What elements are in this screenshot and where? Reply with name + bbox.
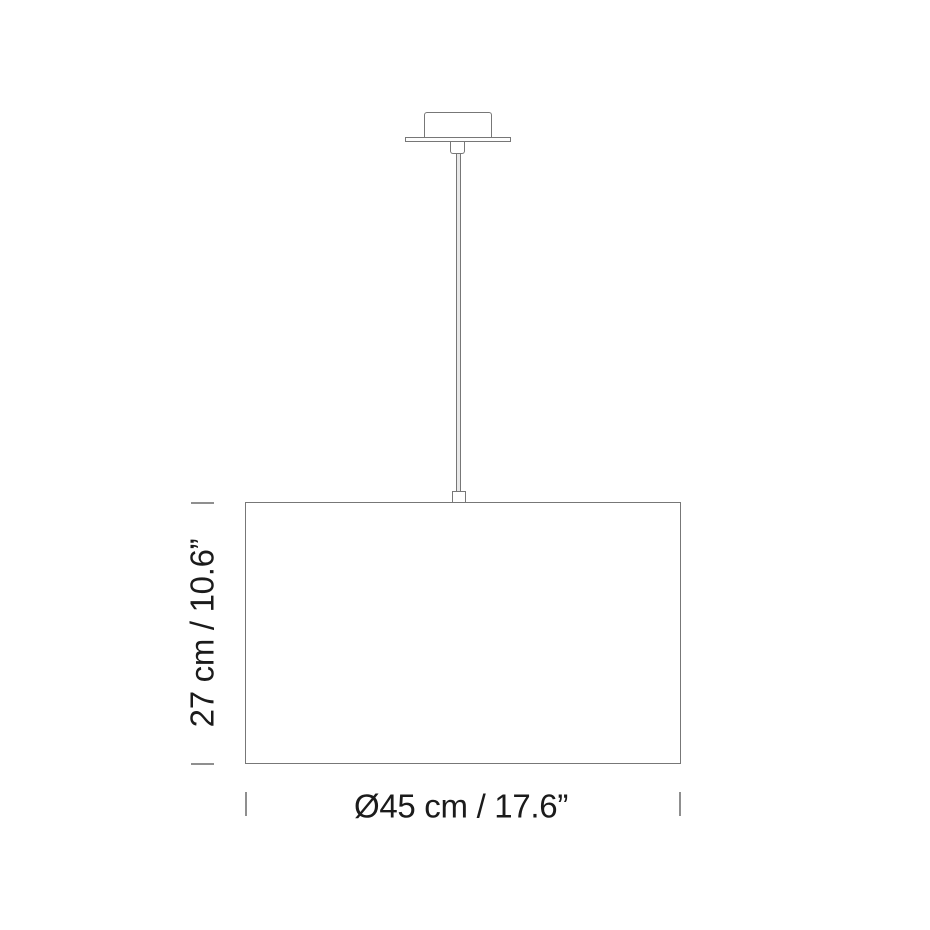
diameter-dimension-label: Ø45 cm / 17.6” xyxy=(354,790,568,823)
shade-connector xyxy=(452,491,466,503)
diameter-dimension-tick-right xyxy=(679,792,681,816)
height-dimension-tick-top xyxy=(191,502,214,504)
dimension-diagram: 27 cm / 10.6” Ø45 cm / 17.6” xyxy=(0,0,930,930)
diameter-dimension-tick-left xyxy=(245,792,247,816)
height-dimension-label: 27 cm / 10.6” xyxy=(186,539,219,728)
height-dimension-tick-bottom xyxy=(191,763,214,765)
lamp-shade xyxy=(245,502,681,764)
stem-holder xyxy=(450,142,465,154)
suspension-rod xyxy=(456,154,461,492)
ceiling-canopy xyxy=(424,112,492,137)
